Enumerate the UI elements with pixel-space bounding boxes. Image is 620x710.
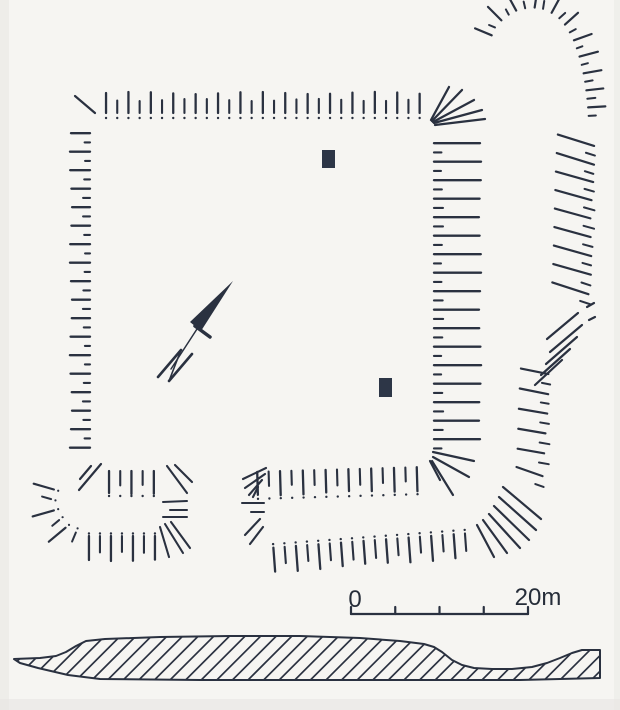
annex-east-fan <box>167 465 192 493</box>
annex-se-fan <box>160 522 190 557</box>
outer-east-scarp-top-arc <box>475 0 605 116</box>
outer-east-scarp-bend-fan <box>535 303 595 385</box>
page-edge-shadow-right <box>614 0 620 710</box>
causeway-east-fan-upper <box>243 468 266 497</box>
outer-east-scarp-lower <box>517 369 551 487</box>
annex-outer-south-scarp <box>88 532 156 561</box>
scale-bar-ticks <box>351 607 528 614</box>
causeway-east-fan-lower <box>245 519 263 544</box>
outer-south-scarp <box>272 529 466 572</box>
annex-outer-west-arc <box>33 484 79 542</box>
platform-south-scarp-west <box>108 471 155 497</box>
building-block <box>322 150 335 168</box>
platform-nw-corner-hachure <box>75 96 95 113</box>
platform-ne-corner-fan <box>431 87 485 125</box>
north-arrow <box>158 281 233 381</box>
hachure-layer <box>33 0 606 572</box>
cross-section-profile <box>0 616 620 696</box>
platform-east-scarp <box>434 143 481 448</box>
scale-bar-end-label: 20m <box>515 584 562 611</box>
platform-west-scarp <box>70 133 90 448</box>
earthwork-plan-and-profile: 0 20m <box>0 0 620 710</box>
outer-south-east-corner-fan <box>477 487 541 557</box>
scale-bar-zero-label: 0 <box>348 586 361 613</box>
outer-east-scarp-upper <box>552 135 595 305</box>
scale-bar: 0 20m <box>348 584 561 614</box>
profile-outline <box>14 636 600 680</box>
annex-east-scarp <box>163 501 187 517</box>
profile-hatching <box>0 616 620 696</box>
platform-sw-corner-hachures <box>79 464 101 490</box>
page-edge-shadow-bottom <box>0 699 620 710</box>
platform-se-corner-fan <box>430 452 474 495</box>
building-block <box>379 378 392 397</box>
building-layer <box>322 150 392 397</box>
north-arrow-lance <box>190 281 233 331</box>
scanned-survey-figure: 0 20m <box>0 0 620 710</box>
platform-north-scarp <box>105 92 421 119</box>
platform-south-scarp-east <box>257 467 419 500</box>
north-letter-n <box>158 350 192 381</box>
causeway-east-scarp <box>242 503 264 512</box>
page-edge-shadow-left <box>0 0 9 710</box>
